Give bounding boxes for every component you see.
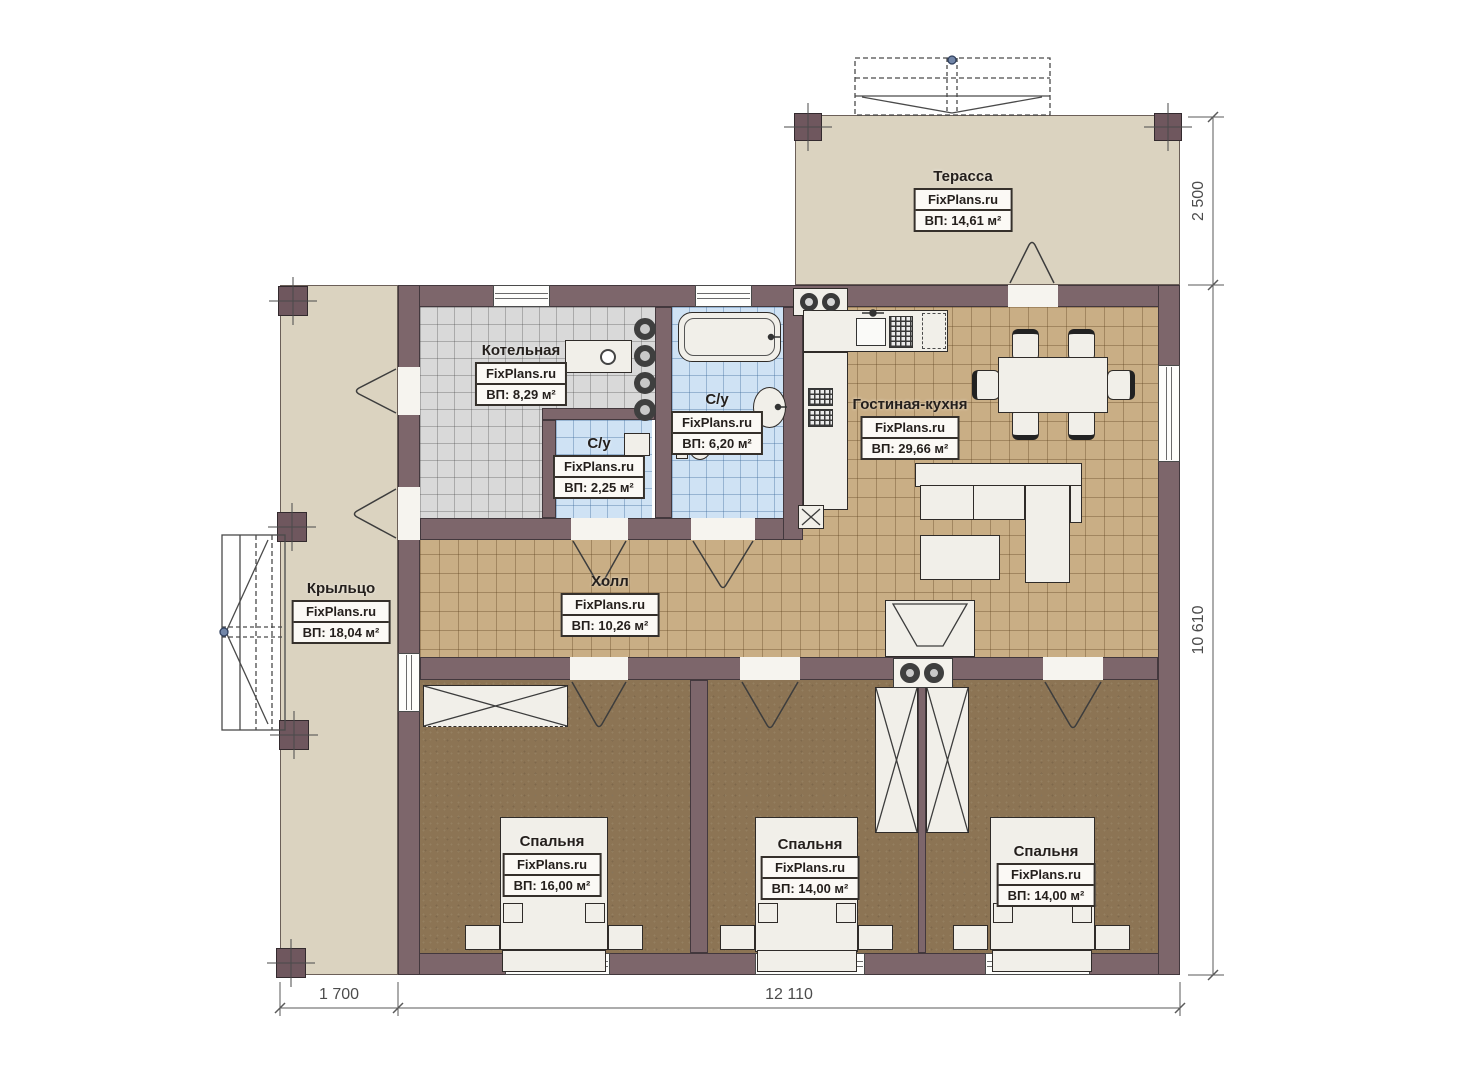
room-name: Котельная bbox=[482, 342, 561, 359]
watermark-text: FixPlans.ru bbox=[673, 413, 761, 434]
porch-column bbox=[278, 286, 308, 316]
room-area: ВП: 14,00 м² bbox=[763, 879, 858, 898]
watermark-box: FixPlans.ru ВП: 14,61 м² bbox=[914, 188, 1013, 232]
bathtub bbox=[678, 312, 781, 362]
dining-chair bbox=[1107, 370, 1135, 400]
nightstand bbox=[858, 925, 893, 950]
dimension-terrace-depth: 2 500 bbox=[1190, 181, 1208, 221]
room-name: Терасса bbox=[933, 168, 992, 185]
kitchen-counter-left bbox=[803, 352, 848, 510]
boiler-tank-icon bbox=[634, 345, 656, 367]
boiler-counter bbox=[565, 340, 632, 373]
room-label-bedroom-2: Спальня FixPlans.ru ВП: 14,00 м² bbox=[761, 836, 860, 900]
room-label-bedroom-1: Спальня FixPlans.ru ВП: 16,00 м² bbox=[503, 833, 602, 897]
watermark-text: FixPlans.ru bbox=[999, 865, 1094, 886]
sofa-chaise bbox=[1025, 485, 1070, 583]
door-opening-boiler-porch bbox=[398, 367, 420, 415]
sofa-seat-divider bbox=[973, 486, 974, 519]
room-name: Гостиная-кухня bbox=[853, 396, 968, 413]
room-label-porch: Крыльцо FixPlans.ru ВП: 18,04 м² bbox=[292, 580, 391, 644]
room-label-terrace: Терасса FixPlans.ru ВП: 14,61 м² bbox=[914, 168, 1013, 232]
dish-drainer bbox=[889, 316, 913, 348]
room-name: С/у bbox=[587, 435, 610, 452]
room-area: ВП: 18,04 м² bbox=[294, 623, 389, 642]
watermark-box: FixPlans.ru ВП: 10,26 м² bbox=[561, 593, 660, 637]
room-label-bedroom-3: Спальня FixPlans.ru ВП: 14,00 м² bbox=[997, 843, 1096, 907]
bed-footboard bbox=[992, 950, 1092, 972]
watermark-text: FixPlans.ru bbox=[294, 602, 389, 623]
bathtub-inner bbox=[684, 318, 775, 356]
floor-plan-canvas: Терасса FixPlans.ru ВП: 14,61 м² Котельн… bbox=[0, 0, 1473, 1080]
room-label-bath-small: С/у FixPlans.ru ВП: 2,25 м² bbox=[553, 435, 645, 499]
door-opening-bath-small bbox=[571, 518, 628, 540]
bed-footboard bbox=[757, 950, 857, 972]
nightstand bbox=[608, 925, 643, 950]
window-top-bath bbox=[695, 285, 752, 307]
pillow bbox=[503, 903, 523, 923]
watermark-box: FixPlans.ru ВП: 8,29 м² bbox=[475, 362, 567, 406]
watermark-text: FixPlans.ru bbox=[477, 364, 565, 385]
burner-icon bbox=[822, 293, 840, 311]
dining-chair bbox=[972, 370, 1000, 400]
room-area: ВП: 10,26 м² bbox=[563, 616, 658, 635]
room-area: ВП: 16,00 м² bbox=[505, 876, 600, 895]
watermark-text: FixPlans.ru bbox=[916, 190, 1011, 211]
room-area: ВП: 8,29 м² bbox=[477, 385, 565, 404]
watermark-text: FixPlans.ru bbox=[505, 855, 600, 876]
kitchen-sink bbox=[856, 318, 886, 346]
nightstand bbox=[465, 925, 500, 950]
room-name: Крыльцо bbox=[307, 580, 375, 597]
watermark-box: FixPlans.ru ВП: 14,00 м² bbox=[761, 856, 860, 900]
room-label-living-kitchen: Гостиная-кухня FixPlans.ru ВП: 29,66 м² bbox=[853, 396, 968, 460]
wall-bedroom2-3 bbox=[918, 680, 926, 953]
watermark-text: FixPlans.ru bbox=[555, 457, 643, 478]
oven-symbol bbox=[808, 388, 833, 406]
wardrobe bbox=[926, 687, 969, 833]
sofa-back bbox=[915, 463, 1082, 487]
room-name: Холл bbox=[591, 573, 629, 590]
porch-stairs bbox=[220, 535, 285, 730]
fireplace bbox=[885, 600, 975, 657]
room-area: ВП: 14,00 м² bbox=[999, 886, 1094, 905]
room-label-bath-large: С/у FixPlans.ru ВП: 6,20 м² bbox=[671, 391, 763, 455]
wall-boiler-bath bbox=[655, 307, 672, 518]
terrace-column bbox=[1154, 113, 1182, 141]
watermark-box: FixPlans.ru ВП: 18,04 м² bbox=[292, 600, 391, 644]
watermark-text: FixPlans.ru bbox=[763, 858, 858, 879]
watermark-text: FixPlans.ru bbox=[863, 418, 958, 439]
flue-pipe-icon bbox=[924, 663, 944, 683]
bed-footboard bbox=[502, 950, 606, 972]
sofa-seats bbox=[920, 485, 1025, 520]
washer-drum-icon bbox=[600, 349, 616, 365]
terrace-stairs bbox=[855, 56, 1050, 115]
room-name: Спальня bbox=[520, 833, 585, 850]
room-area: ВП: 2,25 м² bbox=[555, 478, 643, 497]
boiler-tank-icon bbox=[634, 318, 656, 340]
nightstand bbox=[1095, 925, 1130, 950]
watermark-box: FixPlans.ru ВП: 6,20 м² bbox=[671, 411, 763, 455]
watermark-box: FixPlans.ru ВП: 2,25 м² bbox=[553, 455, 645, 499]
terrace-column bbox=[794, 113, 822, 141]
room-area: ВП: 14,61 м² bbox=[916, 211, 1011, 230]
watermark-box: FixPlans.ru ВП: 14,00 м² bbox=[997, 863, 1096, 907]
boiler-tank-icon bbox=[634, 372, 656, 394]
dimension-house-depth: 10 610 bbox=[1190, 606, 1208, 655]
wall-bedroom1-2 bbox=[690, 680, 708, 953]
door-opening-terrace bbox=[1008, 285, 1058, 307]
door-opening-bedroom-2 bbox=[740, 657, 800, 680]
flue-pipe-icon bbox=[900, 663, 920, 683]
wardrobe bbox=[423, 685, 568, 727]
room-name: Спальня bbox=[778, 836, 843, 853]
watermark-box: FixPlans.ru ВП: 29,66 м² bbox=[861, 416, 960, 460]
watermark-box: FixPlans.ru ВП: 16,00 м² bbox=[503, 853, 602, 897]
window-top-boiler bbox=[493, 285, 550, 307]
door-opening-bedroom-3 bbox=[1043, 657, 1103, 680]
dining-table bbox=[998, 357, 1108, 413]
dimension-house-width: 12 110 bbox=[765, 986, 813, 1004]
porch-column bbox=[277, 512, 307, 542]
nightstand bbox=[953, 925, 988, 950]
porch-column bbox=[276, 948, 306, 978]
pillow bbox=[758, 903, 778, 923]
door-opening-entrance bbox=[398, 487, 420, 540]
coffee-table bbox=[920, 535, 1000, 580]
room-area: ВП: 29,66 м² bbox=[863, 439, 958, 458]
pillow bbox=[836, 903, 856, 923]
window-bedroom-1-side bbox=[398, 653, 420, 712]
window-living bbox=[1158, 365, 1180, 462]
wardrobe bbox=[875, 687, 918, 833]
oven-symbol bbox=[808, 409, 833, 427]
pillow bbox=[585, 903, 605, 923]
burner-icon bbox=[800, 293, 818, 311]
dimension-porch-width: 1 700 bbox=[319, 986, 359, 1004]
sofa-armrest bbox=[1070, 485, 1082, 523]
boiler-tank-icon bbox=[634, 399, 656, 421]
room-name: Спальня bbox=[1014, 843, 1079, 860]
room-label-hall: Холл FixPlans.ru ВП: 10,26 м² bbox=[561, 573, 660, 637]
room-name: С/у bbox=[705, 391, 728, 408]
water-heater-box bbox=[798, 505, 824, 529]
room-area: ВП: 6,20 м² bbox=[673, 434, 761, 453]
porch-column bbox=[279, 720, 309, 750]
dishwasher-dashed bbox=[922, 313, 946, 349]
door-opening-bath-large bbox=[691, 518, 755, 540]
door-opening-bedroom-1 bbox=[570, 657, 628, 680]
watermark-text: FixPlans.ru bbox=[563, 595, 658, 616]
nightstand bbox=[720, 925, 755, 950]
room-label-boiler: Котельная FixPlans.ru ВП: 8,29 м² bbox=[475, 342, 567, 406]
